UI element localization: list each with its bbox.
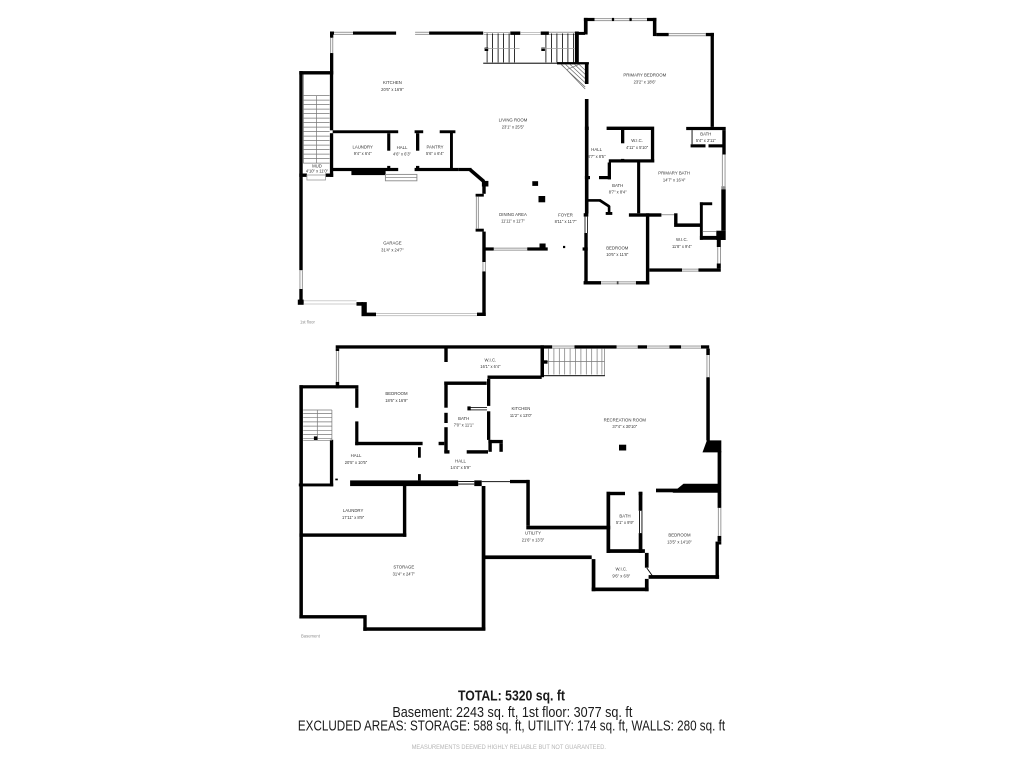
svg-text:LAUNDRY: LAUNDRY bbox=[352, 144, 373, 149]
svg-text:9'4" x 6'4": 9'4" x 6'4" bbox=[354, 151, 372, 156]
svg-text:BATH: BATH bbox=[619, 513, 630, 518]
svg-text:11'2" x 13'0": 11'2" x 13'0" bbox=[510, 413, 533, 418]
svg-text:PANTRY: PANTRY bbox=[426, 144, 443, 149]
svg-text:STORAGE: STORAGE bbox=[393, 565, 414, 570]
svg-text:FOYER: FOYER bbox=[558, 212, 573, 217]
svg-text:11'8" x 9'4": 11'8" x 9'4" bbox=[672, 244, 692, 249]
svg-text:14'7" x 16'4": 14'7" x 16'4" bbox=[663, 178, 686, 183]
svg-text:4'6" x 6'3": 4'6" x 6'3" bbox=[393, 152, 411, 157]
svg-text:31'4" x 24'7": 31'4" x 24'7" bbox=[381, 247, 404, 252]
svg-text:9'6" x 6'8": 9'6" x 6'8" bbox=[612, 573, 630, 578]
svg-text:1st floor: 1st floor bbox=[300, 320, 316, 325]
svg-text:BATH: BATH bbox=[458, 416, 469, 421]
svg-text:Basement: Basement bbox=[301, 634, 321, 639]
svg-text:W.I.C.: W.I.C. bbox=[615, 567, 627, 572]
svg-text:LAUNDRY: LAUNDRY bbox=[343, 508, 364, 513]
svg-text:17'11" x 8'9": 17'11" x 8'9" bbox=[342, 515, 365, 520]
svg-text:13'5" x 14'10": 13'5" x 14'10" bbox=[667, 539, 692, 544]
svg-text:BATH: BATH bbox=[612, 183, 623, 188]
svg-text:16'1" x 6'4": 16'1" x 6'4" bbox=[480, 364, 501, 369]
svg-text:10'6" x 11'8": 10'6" x 11'8" bbox=[606, 252, 629, 257]
svg-text:HALL: HALL bbox=[397, 145, 408, 150]
svg-text:5'4" x 2'11": 5'4" x 2'11" bbox=[696, 138, 716, 143]
svg-text:18'6" x 16'9": 18'6" x 16'9" bbox=[385, 398, 408, 403]
svg-text:RECREATION ROOM: RECREATION ROOM bbox=[604, 417, 647, 422]
svg-text:TOTAL: 5320 sq. ft: TOTAL: 5320 sq. ft bbox=[458, 688, 565, 705]
svg-text:GARAGE: GARAGE bbox=[383, 241, 402, 246]
svg-text:23'1" x 25'5": 23'1" x 25'5" bbox=[502, 124, 525, 129]
svg-text:4'11" x 5'10": 4'11" x 5'10" bbox=[626, 145, 649, 150]
svg-text:21'6" x 13'3": 21'6" x 13'3" bbox=[522, 537, 545, 542]
svg-text:HALL: HALL bbox=[591, 147, 602, 152]
svg-text:HALL: HALL bbox=[455, 458, 466, 463]
svg-text:W.I.C.: W.I.C. bbox=[485, 357, 497, 362]
svg-text:PRIMARY BATH: PRIMARY BATH bbox=[658, 171, 690, 176]
svg-text:20'6" x 16'9": 20'6" x 16'9" bbox=[381, 87, 404, 92]
svg-text:11'11" x 11'7": 11'11" x 11'7" bbox=[501, 219, 525, 224]
svg-text:14'4" x 5'9": 14'4" x 5'9" bbox=[450, 465, 471, 470]
svg-text:BEDROOM: BEDROOM bbox=[606, 245, 629, 250]
svg-text:8'7" x 8'4": 8'7" x 8'4" bbox=[609, 190, 627, 195]
svg-text:37'4" x 30'10": 37'4" x 30'10" bbox=[612, 424, 637, 429]
svg-text:W.I.C.: W.I.C. bbox=[676, 237, 688, 242]
svg-text:HALL: HALL bbox=[351, 453, 362, 458]
svg-text:3'7" x 8'5": 3'7" x 8'5" bbox=[588, 154, 606, 159]
svg-text:BEDROOM: BEDROOM bbox=[385, 391, 408, 396]
svg-text:DINING AREA: DINING AREA bbox=[499, 212, 527, 217]
svg-text:EXCLUDED AREAS: STORAGE: 588 s: EXCLUDED AREAS: STORAGE: 588 sq. ft, UTI… bbox=[298, 718, 725, 734]
svg-text:23'2" x 18'6": 23'2" x 18'6" bbox=[634, 79, 657, 84]
svg-text:PRIMARY BEDROOM: PRIMARY BEDROOM bbox=[623, 73, 666, 78]
svg-text:31'4" x 24'7": 31'4" x 24'7" bbox=[393, 571, 416, 576]
svg-text:BEDROOM: BEDROOM bbox=[668, 533, 691, 538]
svg-text:KITCHEN: KITCHEN bbox=[383, 80, 402, 85]
svg-text:MEASUREMENTS DEEMED HIGHLY REL: MEASUREMENTS DEEMED HIGHLY RELIABLE BUT … bbox=[412, 744, 606, 751]
svg-text:LIVING ROOM: LIVING ROOM bbox=[499, 118, 528, 123]
svg-text:UTILITY: UTILITY bbox=[525, 531, 541, 536]
svg-text:5'6" x 6'4": 5'6" x 6'4" bbox=[426, 151, 444, 156]
svg-text:8'11" x 11'7": 8'11" x 11'7" bbox=[555, 219, 577, 224]
svg-text:W.I.C.: W.I.C. bbox=[631, 138, 643, 143]
svg-text:5'1" x 9'9": 5'1" x 9'9" bbox=[616, 520, 634, 525]
svg-text:BATH: BATH bbox=[700, 131, 711, 136]
svg-text:4'10" x 11'0": 4'10" x 11'0" bbox=[306, 168, 329, 173]
svg-text:7'0" x 11'1": 7'0" x 11'1" bbox=[454, 423, 474, 428]
svg-text:20'5" x 10'5": 20'5" x 10'5" bbox=[345, 460, 368, 465]
svg-text:KITCHEN: KITCHEN bbox=[511, 406, 530, 411]
